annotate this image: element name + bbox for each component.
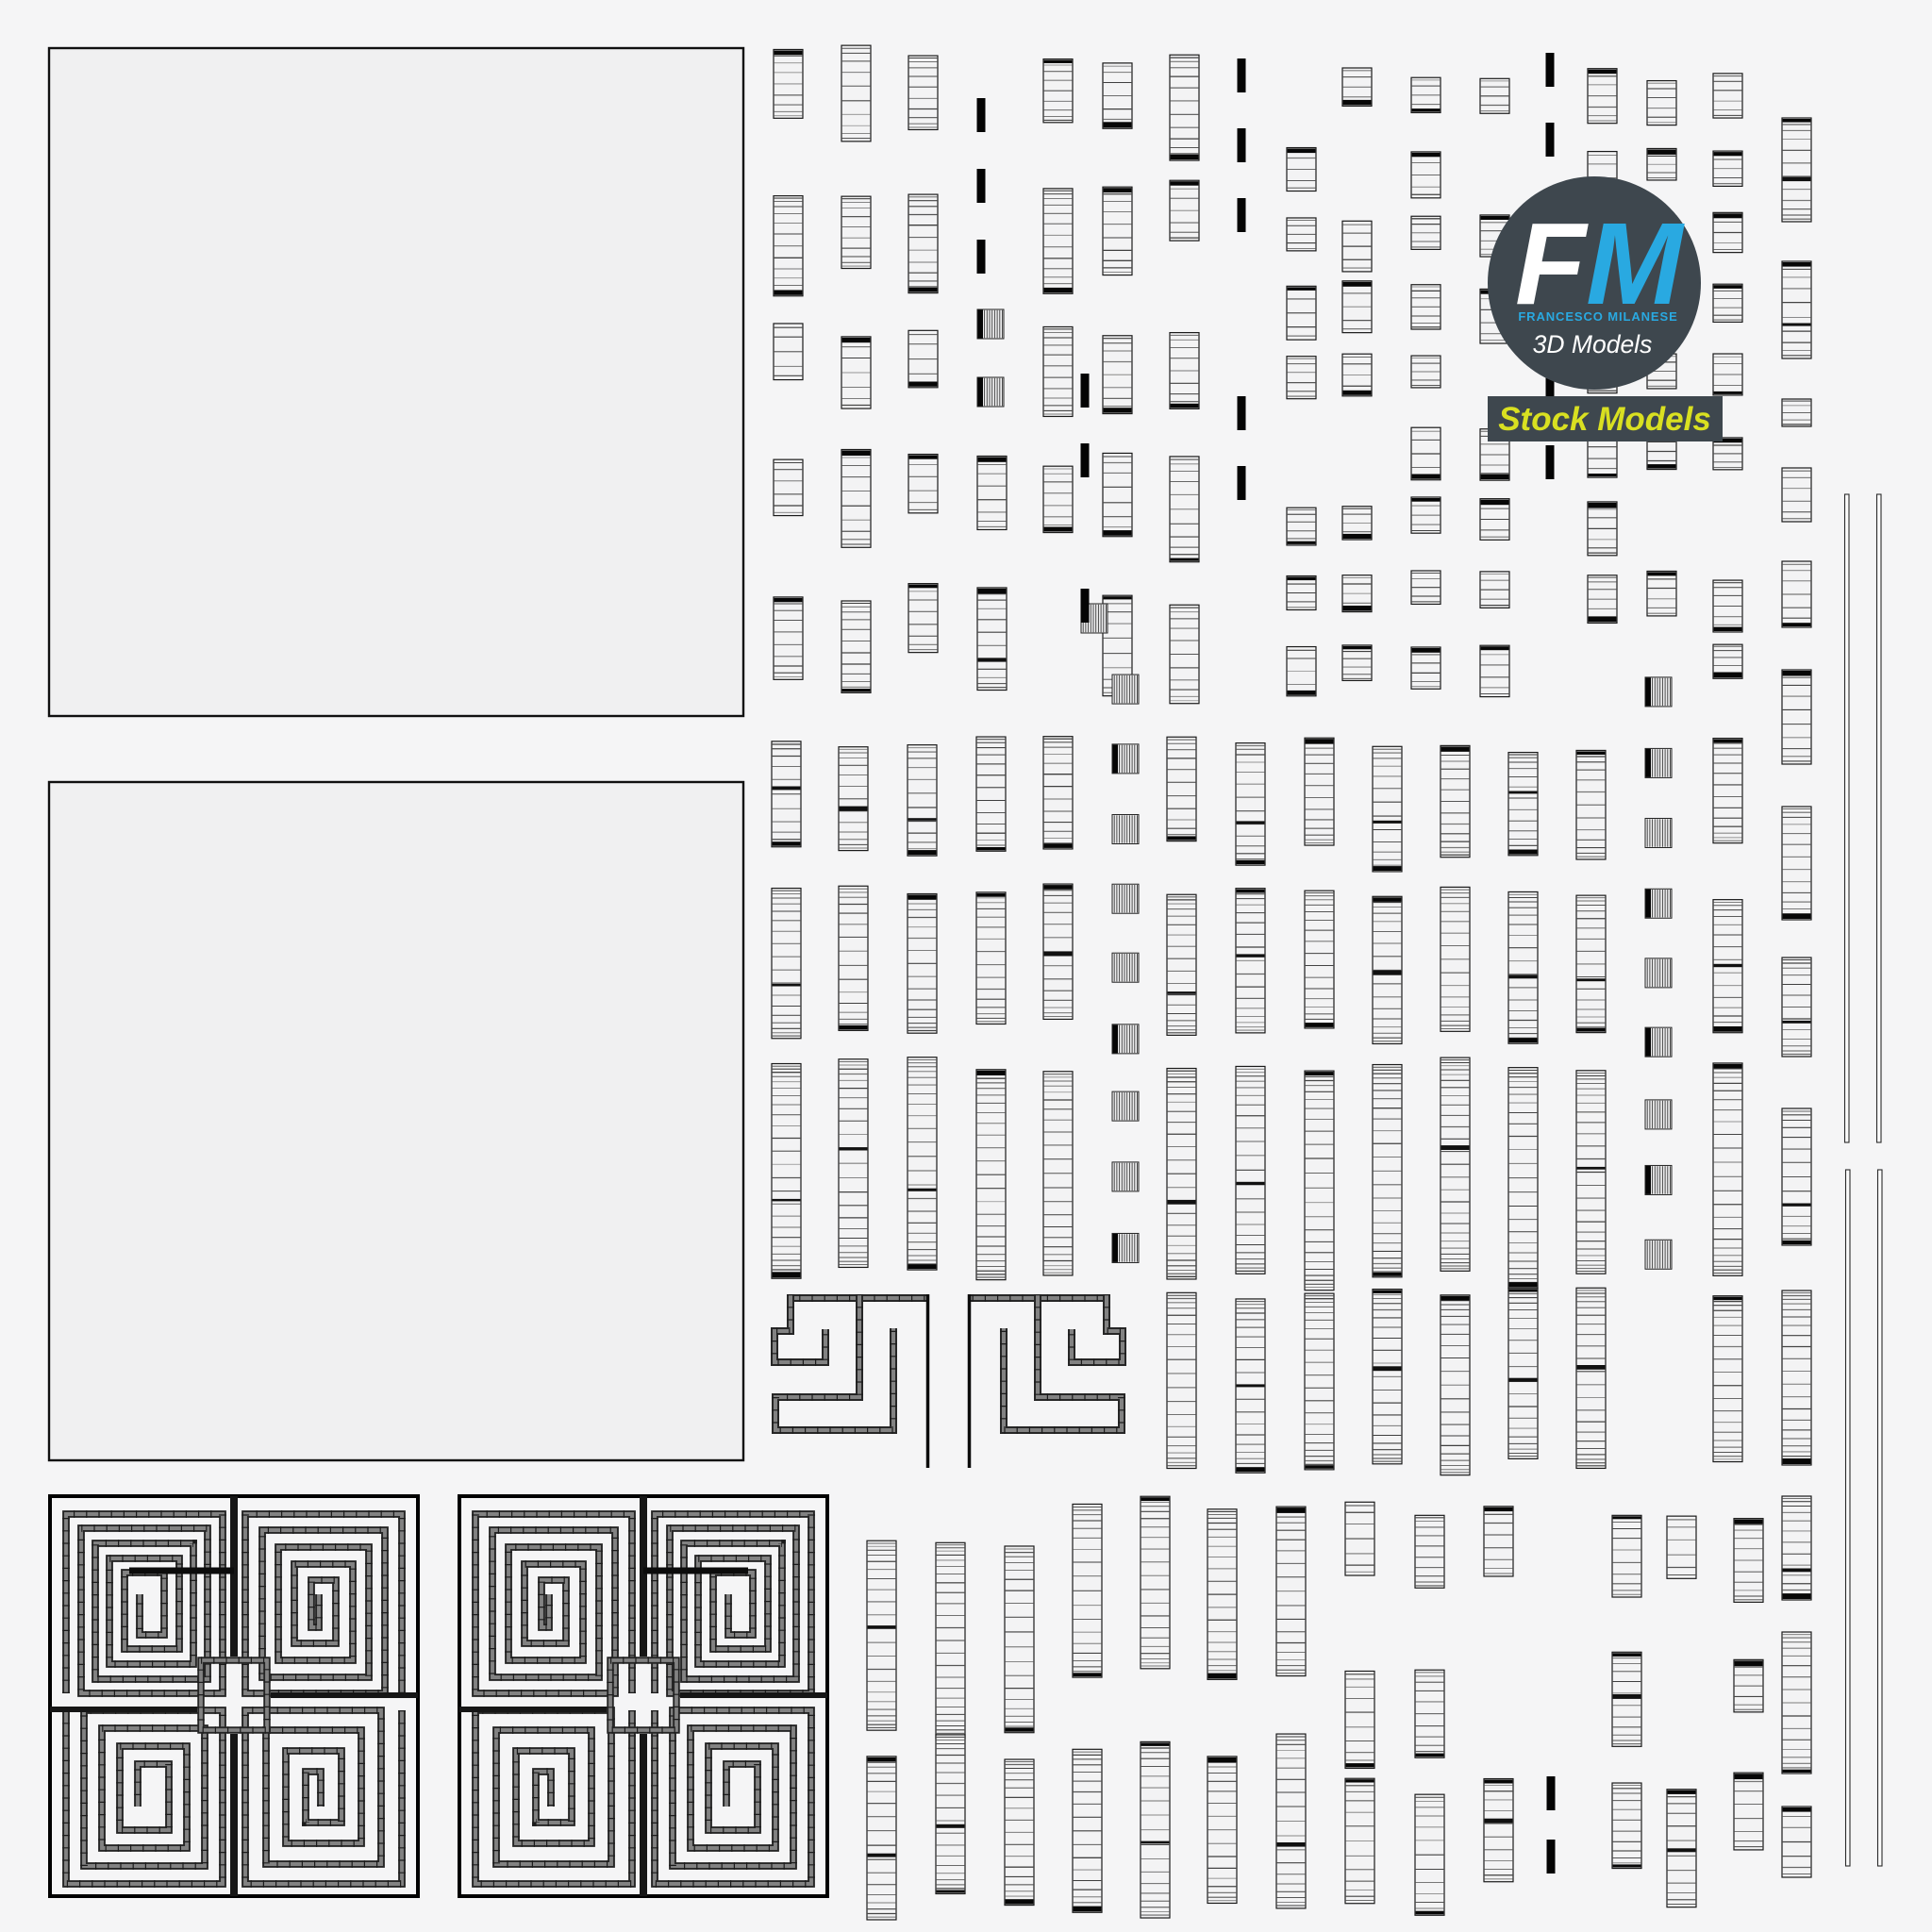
svg-text:3D Models: 3D Models xyxy=(1533,330,1653,358)
svg-text:Stock Models: Stock Models xyxy=(1498,401,1711,438)
svg-text:FRANCESCO MILANESE: FRANCESCO MILANESE xyxy=(1518,309,1677,324)
